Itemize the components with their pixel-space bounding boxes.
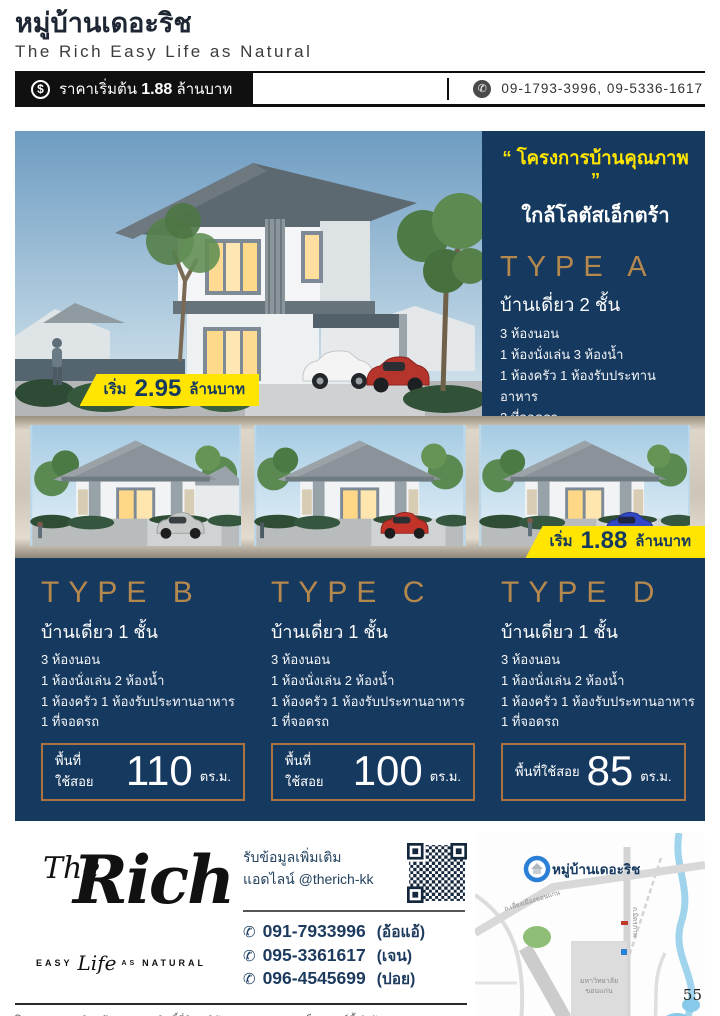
one-story-house-photo-2 — [254, 425, 465, 546]
starting-price-text: ราคาเริ่มต้น 1.88 ล้านบาท — [59, 77, 232, 101]
spec-line: 1 ห้องนั่งเล่น 3 ห้องน้ำ — [500, 345, 691, 366]
page-number: 55 — [683, 986, 702, 1004]
area-value: 100 — [353, 750, 423, 792]
type-d-subtitle: บ้านเดี่ยว 1 ชั้น — [501, 617, 705, 646]
area-value: 85 — [587, 750, 634, 792]
handset-icon: ✆ — [243, 947, 256, 967]
contact-phone-row: ✆ 095-3361617 (เจน) — [243, 944, 467, 967]
ribbon-value: 2.95 — [135, 377, 182, 401]
brochure-page: หมู่บ้านเดอะริช The Rich Easy Life as Na… — [0, 0, 720, 1016]
logo-tagline: EASY Life AS NATURAL — [36, 951, 206, 975]
type-d-column: TYPE D บ้านเดี่ยว 1 ชั้น 3 ห้องนอน 1 ห้อ… — [475, 574, 705, 801]
contact-phone-row: ✆ 091-7933996 (อ้อแอ้) — [243, 920, 467, 943]
ribbon-prefix: เริ่ม — [550, 529, 573, 553]
types-section: TYPE B บ้านเดี่ยว 1 ชั้น 3 ห้องนอน 1 ห้อ… — [15, 558, 705, 821]
area-unit: ตร.ม. — [430, 766, 461, 792]
map-project-label: หมู่บ้านเดอะริช — [552, 862, 640, 878]
map-university-label-2: ขอนแก่น — [585, 988, 613, 995]
divider — [447, 78, 449, 100]
hero-section: เริ่ม 2.95 ล้านบาท “ โครงการบ้านคุณภาพ ”… — [15, 131, 705, 416]
page-title: หมู่บ้านเดอะริช — [15, 8, 705, 39]
divider — [243, 910, 465, 912]
type-c-column: TYPE C บ้านเดี่ยว 1 ชั้น 3 ห้องนอน 1 ห้อ… — [245, 574, 475, 801]
handset-icon: ✆ — [243, 970, 256, 990]
phone-contact-name: (เจน) — [377, 947, 412, 967]
header-phone-numbers: 09-1793-3996, 09-5336-1617 — [501, 81, 703, 96]
price-value: 1.88 — [141, 81, 172, 98]
page-subtitle: The Rich Easy Life as Natural — [15, 42, 705, 62]
type-c-area-box: พื้นที่ใช้สอย 100 ตร.ม. — [271, 743, 475, 801]
spec-line: 1 ห้องครัว 1 ห้องรับประทานอาหาร — [500, 366, 691, 408]
the-rich-logo: The Rich EASY Life AS NATURAL — [15, 837, 227, 990]
price-bar: $ ราคาเริ่มต้น 1.88 ล้านบาท ✆ 09-1793-39… — [15, 71, 705, 107]
spec-line: 1 ห้องครัว 1 ห้องรับประทานอาหาร — [41, 692, 245, 713]
type-a-specs: 3 ห้องนอน 1 ห้องนั่งเล่น 3 ห้องน้ำ 1 ห้อ… — [500, 324, 691, 428]
footer: The Rich EASY Life AS NATURAL รับข้อมูลเ… — [15, 821, 705, 1016]
header: หมู่บ้านเดอะริช The Rich Easy Life as Na… — [0, 0, 720, 107]
area-value: 110 — [126, 750, 193, 792]
tagline-life: Life — [78, 951, 117, 975]
line-id: แอดไลน์ @therich-kk — [243, 869, 397, 891]
price-label: ราคาเริ่มต้น — [59, 81, 137, 98]
spec-line: 1 ห้องนั่งเล่น 2 ห้องน้ำ — [41, 671, 245, 692]
footer-left: The Rich EASY Life AS NATURAL รับข้อมูลเ… — [15, 837, 467, 1016]
map-road-mittraphap-label: ถ.มิตรภาพ — [631, 907, 639, 937]
two-story-house-render — [15, 131, 482, 416]
type-d-title: TYPE D — [501, 576, 705, 610]
type-d-specs: 3 ห้องนอน 1 ห้องนั่งเล่น 2 ห้องน้ำ 1 ห้อ… — [501, 650, 705, 733]
type-a-subtitle: บ้านเดี่ยว 2 ชั้น — [500, 291, 691, 320]
type-c-title: TYPE C — [271, 576, 475, 610]
map-university-label-1: มหาวิทยาลัย — [580, 977, 618, 985]
one-story-house-render — [254, 425, 465, 546]
spec-line: 1 ที่จอดรถ — [501, 712, 705, 733]
hero-price-ribbon: เริ่ม 2.95 ล้านบาท — [80, 374, 260, 406]
area-label: พื้นที่ใช้สอย — [55, 750, 119, 792]
spec-line: 1 ห้องนั่งเล่น 2 ห้องน้ำ — [501, 671, 705, 692]
project-quote: “ โครงการบ้านคุณภาพ ” — [500, 147, 691, 191]
spec-line: 1 ที่จอดรถ — [271, 712, 475, 733]
area-label: พื้นที่ใช้สอย — [515, 761, 580, 782]
phone-contact-name: (ปอย) — [377, 970, 416, 990]
type-b-title: TYPE B — [41, 576, 245, 610]
tagline-as: AS — [121, 960, 137, 967]
phone-contact-name: (อ้อแอ้) — [377, 923, 425, 943]
contact-phone-row: ✆ 096-4545699 (ปอย) — [243, 967, 467, 990]
area-label: พื้นที่ใช้สอย — [285, 750, 346, 792]
spec-line: 1 ห้องนั่งเล่น 2 ห้องน้ำ — [271, 671, 475, 692]
one-story-house-photo-1 — [30, 425, 241, 546]
logo-word-rich: Rich — [73, 841, 233, 919]
header-phone-strip: ✆ 09-1793-3996, 09-5336-1617 — [253, 71, 705, 107]
contact-block: รับข้อมูลเพิ่มเติม แอดไลน์ @therich-kk — [227, 837, 467, 990]
spec-line: 1 ห้องครัว 1 ห้องรับประทานอาหาร — [271, 692, 475, 713]
type-c-specs: 3 ห้องนอน 1 ห้องนั่งเล่น 2 ห้องน้ำ 1 ห้อ… — [271, 650, 475, 733]
type-b-subtitle: บ้านเดี่ยว 1 ชั้น — [41, 617, 245, 646]
map-illustration: ถ.เลี่ยงเมืองขอนแก่น ถ.มิตรภาพ มหาวิทยาล… — [475, 833, 705, 1016]
tagline-natural: NATURAL — [142, 958, 206, 968]
ribbon-value: 1.88 — [581, 529, 628, 553]
type-d-area-box: พื้นที่ใช้สอย 85 ตร.ม. — [501, 743, 686, 801]
location-map: ถ.เลี่ยงเมืองขอนแก่น ถ.มิตรภาพ มหาวิทยาล… — [475, 833, 705, 1016]
ribbon-unit: ล้านบาท — [635, 529, 691, 553]
type-a-title: TYPE A — [500, 251, 691, 284]
logo-script: The Rich — [15, 841, 227, 933]
phone-icon: ✆ — [473, 80, 491, 98]
spec-line: 1 ห้องครัว 1 ห้องรับประทานอาหาร — [501, 692, 705, 713]
gallery-band: เริ่ม 1.88 ล้านบาท — [15, 416, 705, 558]
handset-icon: ✆ — [243, 923, 256, 943]
spec-line: 3 ห้องนอน — [271, 650, 475, 671]
divider — [15, 1003, 467, 1005]
ribbon-unit: ล้านบาท — [189, 377, 245, 401]
type-b-column: TYPE B บ้านเดี่ยว 1 ชั้น 3 ห้องนอน 1 ห้อ… — [15, 574, 245, 801]
type-b-area-box: พื้นที่ใช้สอย 110 ตร.ม. — [41, 743, 245, 801]
qr-code — [407, 843, 467, 903]
spec-line: 1 ที่จอดรถ — [41, 712, 245, 733]
line-info: รับข้อมูลเพิ่มเติม แอดไลน์ @therich-kk — [243, 843, 397, 903]
gallery-price-ribbon: เริ่ม 1.88 ล้านบาท — [526, 526, 706, 558]
project-location: ใกล้โลตัสเอ็กตร้า — [500, 199, 691, 231]
line-info-text: รับข้อมูลเพิ่มเติม — [243, 847, 397, 869]
starting-price-badge: $ ราคาเริ่มต้น 1.88 ล้านบาท — [15, 71, 253, 107]
price-unit: ล้านบาท — [177, 81, 233, 98]
spec-line: 3 ห้องนอน — [500, 324, 691, 345]
area-unit: ตร.ม. — [640, 766, 671, 792]
type-c-subtitle: บ้านเดี่ยว 1 ชั้น — [271, 617, 475, 646]
type-b-specs: 3 ห้องนอน 1 ห้องนั่งเล่น 2 ห้องน้ำ 1 ห้อ… — [41, 650, 245, 733]
legal-fine-print: โครงการ เดอะริช เจ้าของกรรมสิทธิ์ที่ดิน … — [15, 1013, 467, 1016]
ribbon-prefix: เริ่ม — [104, 377, 127, 401]
area-unit: ตร.ม. — [200, 766, 231, 792]
phone-number: 091-7933996 — [263, 920, 366, 943]
phone-number: 096-4545699 — [263, 967, 366, 990]
dollar-icon: $ — [31, 80, 50, 99]
spec-line: 3 ห้องนอน — [41, 650, 245, 671]
tagline-easy: EASY — [36, 958, 73, 968]
one-story-house-render — [30, 425, 241, 546]
spec-line: 3 ห้องนอน — [501, 650, 705, 671]
type-a-panel: “ โครงการบ้านคุณภาพ ” ใกล้โลตัสเอ็กตร้า … — [482, 131, 705, 416]
hero-house-photo: เริ่ม 2.95 ล้านบาท — [15, 131, 482, 416]
phone-number: 095-3361617 — [263, 944, 366, 967]
